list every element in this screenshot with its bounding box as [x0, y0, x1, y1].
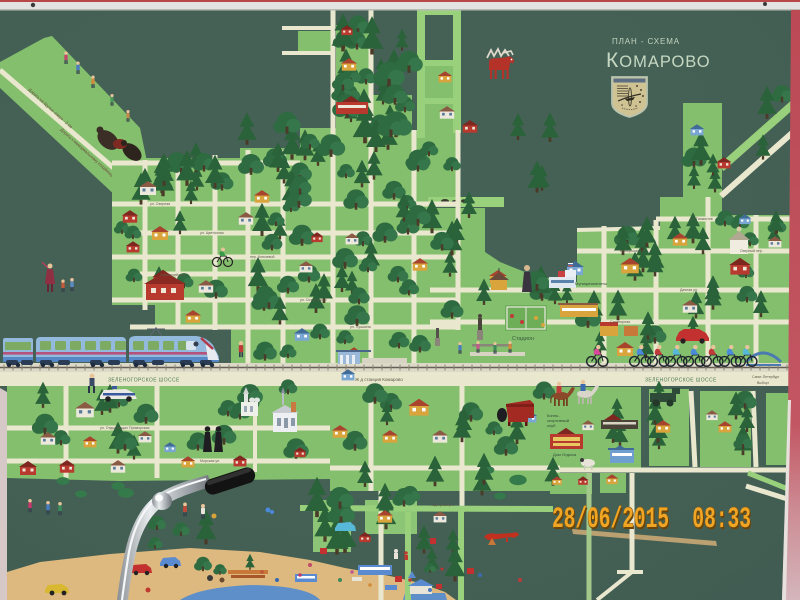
svg-text:ул. Цветочная: ул. Цветочная — [200, 231, 224, 235]
svg-text:Выборгская ул.: Выборгская ул. — [620, 249, 645, 253]
svg-text:Дачная ул.: Дачная ул. — [680, 288, 698, 292]
svg-text:Подгорная ул.: Подгорная ул. — [430, 503, 454, 507]
svg-text:ул. Отдыхающих Приморская: ул. Отдыхающих Приморская — [100, 426, 150, 430]
svg-text:ул. Пушкина: ул. Пушкина — [350, 325, 371, 329]
svg-text:ЗЕЛЕНОГОРСКОЕ ШОССЕ: ЗЕЛЕНОГОРСКОЕ ШОССЕ — [108, 378, 180, 384]
svg-text:Муниципалитеты: Муниципалитеты — [575, 281, 607, 286]
svg-text:Дом Отдыха: Дом Отдыха — [553, 452, 577, 457]
svg-text:Стадион: Стадион — [512, 336, 534, 342]
svg-text:Ж д станция Комарово: Ж д станция Комарово — [355, 377, 403, 382]
svg-text:ЗЕЛЕНОГОРСКОЕ ШОССЕ: ЗЕЛЕНОГОРСКОЕ ШОССЕ — [645, 378, 717, 384]
svg-text:КОМАРОВО: КОМАРОВО — [606, 49, 711, 72]
svg-text:Санкт-Петербург: Санкт-Петербург — [752, 375, 780, 379]
svg-text:ПЛАН - СХЕМА: ПЛАН - СХЕМА — [612, 37, 680, 46]
svg-text:клуб: клуб — [547, 423, 556, 428]
svg-text:Кавалерийская: Кавалерийская — [160, 273, 186, 277]
svg-text:ул. Озерная: ул. Озерная — [150, 202, 170, 206]
svg-text:Санаторная: Санаторная — [610, 320, 630, 324]
svg-text:Выборг: Выборг — [757, 381, 770, 385]
svg-text:Озерный пер.: Озерный пер. — [740, 249, 763, 253]
svg-text:пер. Ключевой: пер. Ключевой — [250, 255, 275, 259]
svg-text:ул. Островского: ул. Островского — [300, 298, 327, 302]
svg-text:ул. Танкистов: ул. Танкистов — [690, 217, 713, 221]
svg-text:Морская ул.: Морская ул. — [200, 459, 220, 463]
